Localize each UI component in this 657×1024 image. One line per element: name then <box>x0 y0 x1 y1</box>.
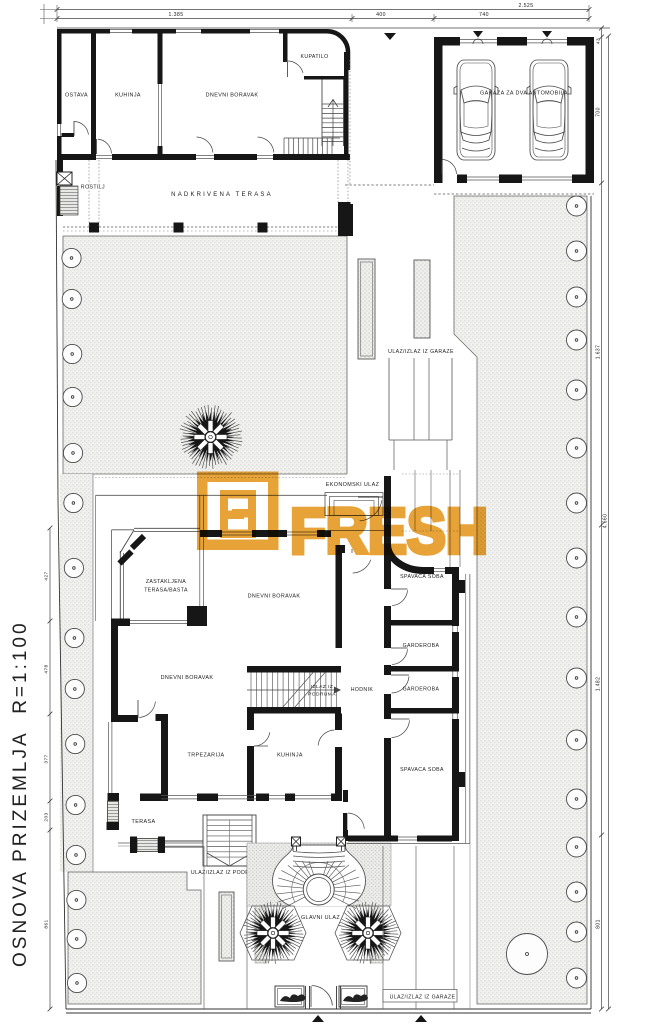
svg-text:DNEVNI BORAVAK: DNEVNI BORAVAK <box>206 93 259 99</box>
svg-text:ROSTILJ: ROSTILJ <box>81 185 105 191</box>
svg-text:OSNOVA PRIZEMLJA R=1:100: OSNOVA PRIZEMLJA R=1:100 <box>10 620 31 967</box>
svg-text:GARDEROBA: GARDEROBA <box>403 687 440 693</box>
svg-text:700: 700 <box>596 107 602 117</box>
svg-text:1.482: 1.482 <box>596 677 602 692</box>
svg-text:FRESH: FRESH <box>290 495 488 567</box>
svg-text:KUHINJA: KUHINJA <box>277 753 303 759</box>
svg-text:801: 801 <box>596 919 602 929</box>
svg-text:IZLAZ IZ: IZLAZ IZ <box>311 684 333 690</box>
svg-text:TERASA/BASTA: TERASA/BASTA <box>144 588 188 594</box>
svg-text:TERASA: TERASA <box>132 819 156 825</box>
svg-text:1.385: 1.385 <box>169 12 184 18</box>
svg-text:PODRUMA: PODRUMA <box>308 692 336 698</box>
svg-text:HODNIK: HODNIK <box>351 687 374 693</box>
svg-text:ULAZ/IZLAZ IZ GARAZE: ULAZ/IZLAZ IZ GARAZE <box>390 995 456 1001</box>
svg-text:ULAZ/IZLAZ IZ GARAZE: ULAZ/IZLAZ IZ GARAZE <box>388 349 454 355</box>
svg-text:4.660: 4.660 <box>603 514 609 529</box>
svg-text:DNEVNI BORAVAK: DNEVNI BORAVAK <box>248 594 301 600</box>
svg-text:861: 861 <box>44 919 50 928</box>
svg-text:478: 478 <box>44 664 50 673</box>
svg-text:NADKRIVENA TERASA: NADKRIVENA TERASA <box>171 192 273 198</box>
svg-text:2.525: 2.525 <box>519 3 534 9</box>
svg-text:SPAVACA SOBA: SPAVACA SOBA <box>400 574 444 580</box>
svg-text:GLAVNI ULAZ: GLAVNI ULAZ <box>301 915 340 921</box>
svg-text:1.637: 1.637 <box>596 345 602 360</box>
svg-text:GARAZA ZA DVA AUTOMOBILA: GARAZA ZA DVA AUTOMOBILA <box>480 91 568 97</box>
svg-text:427: 427 <box>44 571 50 580</box>
svg-text:KUHINJA: KUHINJA <box>115 93 141 99</box>
svg-text:SPAVACA SOBA: SPAVACA SOBA <box>400 767 444 773</box>
svg-text:EKONOMSKI ULAZ: EKONOMSKI ULAZ <box>326 482 380 488</box>
svg-text:GARDEROBA: GARDEROBA <box>403 643 440 649</box>
svg-text:43: 43 <box>596 38 602 44</box>
svg-text:ZASTAKLJENA: ZASTAKLJENA <box>146 579 186 585</box>
svg-text:377: 377 <box>44 754 50 763</box>
svg-text:740: 740 <box>479 12 489 18</box>
svg-text:203: 203 <box>44 812 50 821</box>
svg-text:TRPEZARIJA: TRPEZARIJA <box>188 753 225 759</box>
svg-text:DNEVNI BORAVAK: DNEVNI BORAVAK <box>161 675 214 681</box>
svg-text:400: 400 <box>376 12 386 18</box>
svg-text:OSTAVA: OSTAVA <box>65 93 88 99</box>
svg-text:KUPATILO: KUPATILO <box>300 54 328 60</box>
